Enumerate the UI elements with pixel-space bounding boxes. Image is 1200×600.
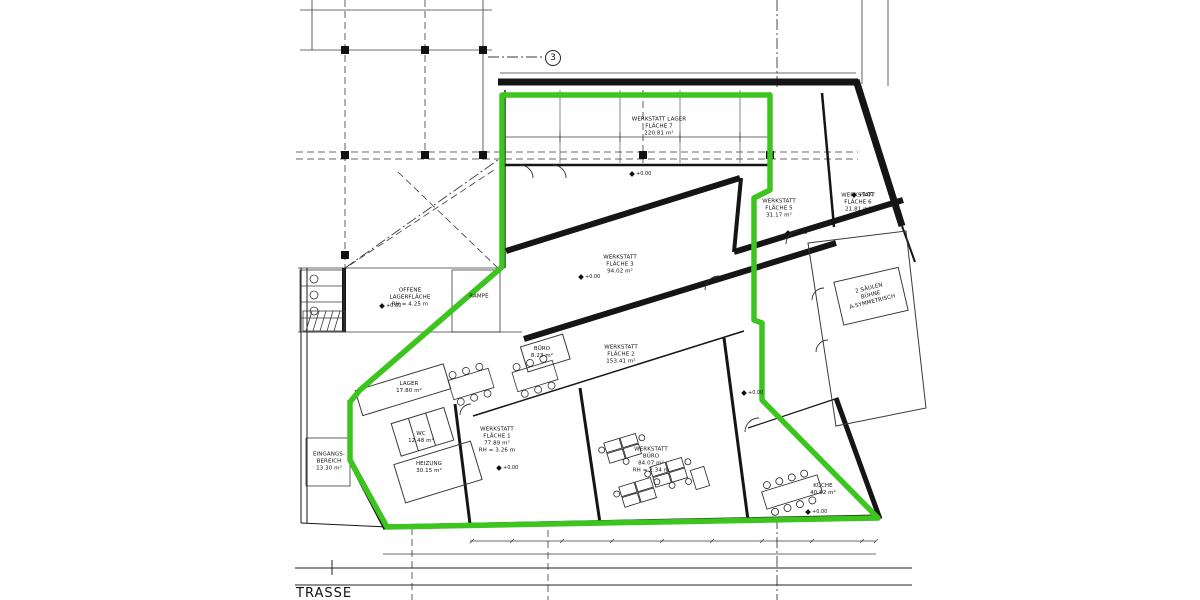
room-label-wc: WC 12.48 m² (408, 431, 434, 445)
level-marker-icon (379, 303, 385, 309)
room-label-werkstatt-lager-flaeche-7: WERKSTATT LAGER FLÄCHE 7 220.81 m² (632, 116, 686, 137)
level-marker: +0.00 (380, 303, 401, 309)
level-marker-icon (805, 509, 811, 515)
level-marker: +0.00 (497, 465, 518, 471)
room-label-werkstatt-flaeche-1: WERKSTATT FLÄCHE 1 77.89 m² RH = 3.26 m (479, 427, 516, 456)
room-label-rampe: RAMPE (469, 293, 488, 300)
level-marker: +0.00 (579, 274, 600, 280)
grid-axis-number: 3 (550, 53, 556, 63)
room-label-werkstatt-flaeche-5: WERKSTATT FLÄCHE 5 31.17 m² (762, 198, 796, 219)
room-label-lager: LAGER 17.80 m² (396, 381, 422, 395)
floorplan-linework (0, 0, 1200, 600)
level-marker-icon (496, 465, 502, 471)
level-marker: +0.00 (630, 171, 651, 177)
room-label-werkstatt-flaeche-2: WERKSTATT FLÄCHE 2 153.41 m² (604, 344, 638, 365)
level-marker-icon (741, 390, 747, 396)
room-label-eingangsbereich: EINGANGS- BEREICH 13.30 m² (313, 451, 345, 472)
level-marker-icon (785, 230, 791, 236)
room-label-kueche: KÜCHE 40.82 m² (810, 483, 836, 497)
level-marker: +0.00 (742, 390, 763, 396)
room-label-werkstatt-buero: WERKSTATT BÜRO 84.07 m² RH = 2.34 m (633, 447, 670, 476)
level-marker: +0.00 (852, 192, 873, 198)
level-marker: +0.00 (806, 509, 827, 515)
floorplan-page: 3 WERKSTATT LAGER FLÄCHE 7 220.81 m² WER… (0, 0, 1200, 600)
level-marker-icon (851, 192, 857, 198)
level-marker-icon (629, 171, 635, 177)
room-label-heizung: HEIZUNG 30.15 m² (416, 461, 442, 475)
room-label-werkstatt-flaeche-3: WERKSTATT FLÄCHE 3 94.02 m² (603, 254, 637, 275)
level-marker-icon (578, 274, 584, 280)
street-name: TRASSE (296, 586, 352, 600)
room-label-buero-klein: BÜRO 8.23 m² (531, 346, 553, 360)
grid-axis-bubble: 3 (545, 50, 561, 66)
level-marker: +0.00 (786, 230, 807, 236)
